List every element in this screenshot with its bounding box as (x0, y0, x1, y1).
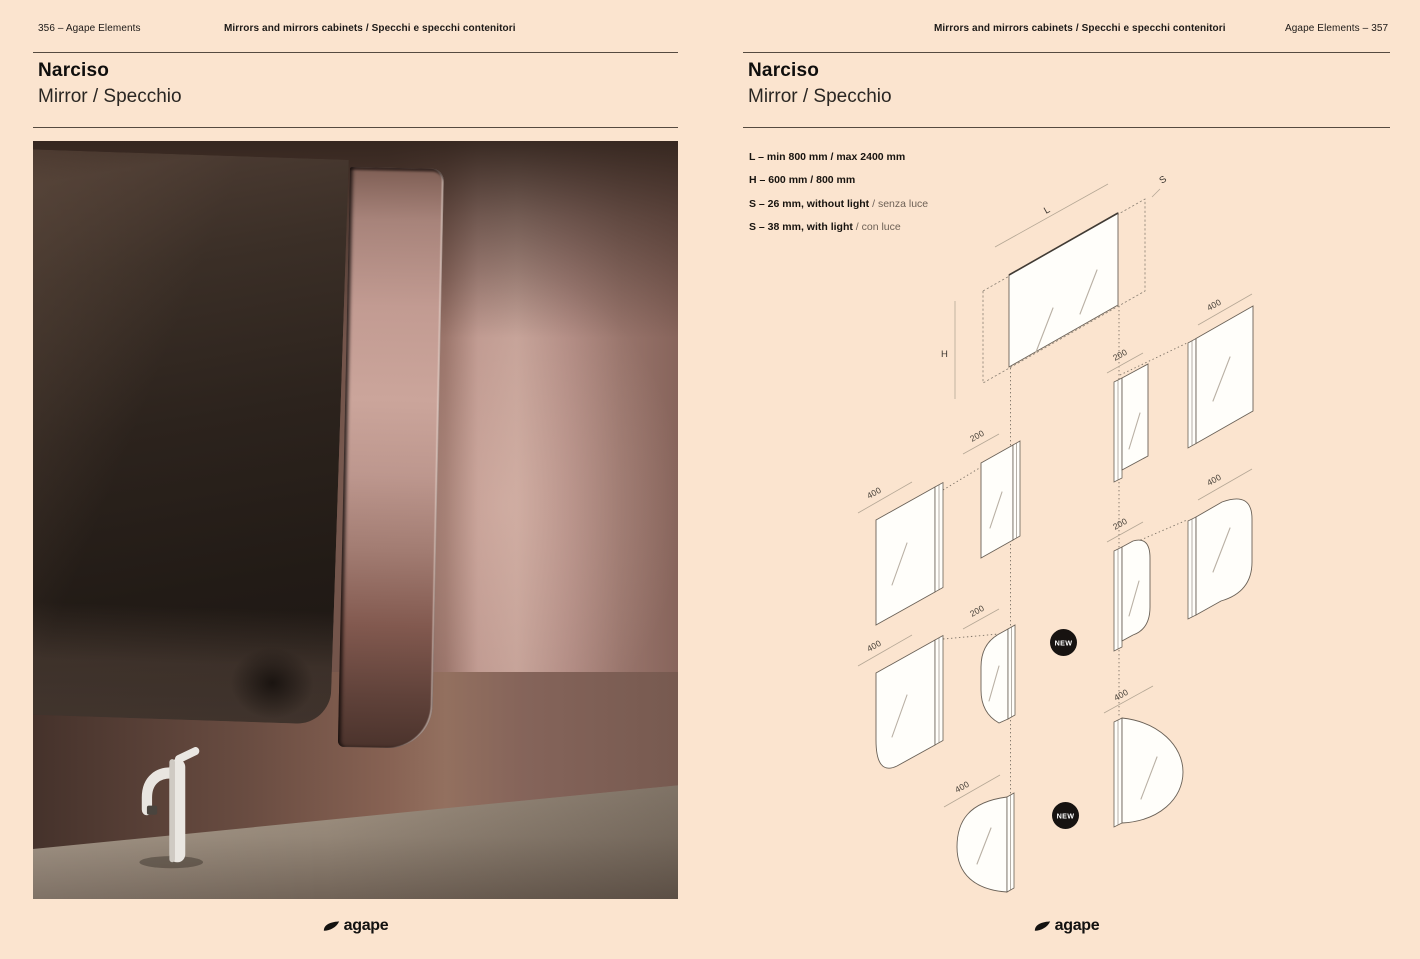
mirror-body (876, 640, 935, 768)
right-product-title: Narciso (748, 60, 819, 82)
dim-label-400: 400 (865, 638, 883, 654)
mirror-body (981, 629, 1008, 723)
agape-logo-text: agape (1055, 917, 1100, 935)
dim-label-400: 400 (1205, 472, 1223, 488)
connector-a2-b2 (943, 634, 999, 639)
dimension-diagram: L H S 400 400 (740, 140, 1420, 930)
left-product-subtitle: Mirror / Specchio (38, 86, 182, 108)
left-footer: agape (33, 917, 678, 935)
right-section-title: Mirrors and mirrors cabinets / Specchi e… (934, 23, 1226, 34)
mirror-body (1196, 306, 1253, 444)
dim-label-200: 200 (968, 428, 986, 444)
mirror-200-pill-right: 200 (1107, 516, 1150, 651)
mirror-400-rect-right: 400 (1188, 294, 1253, 448)
dim-label-S: S (1157, 174, 1169, 187)
right-title-rule (743, 127, 1390, 128)
new-badge: NEW (1052, 802, 1079, 829)
mirror-body (957, 797, 1007, 892)
connector-c1b-c1 (1120, 343, 1187, 375)
product-photo (33, 141, 678, 899)
mirror-body (1122, 364, 1148, 470)
dim-label-L: L (1042, 204, 1052, 216)
mirror-200-rect-right: 200 (1107, 347, 1148, 482)
dim-label-200: 200 (1111, 516, 1129, 532)
mirror-body (981, 445, 1013, 558)
left-page-number: 356 – Agape Elements (38, 23, 141, 34)
mirror-body (1196, 499, 1252, 615)
new-badge-label: NEW (1057, 812, 1075, 821)
dim-label-400: 400 (865, 485, 883, 501)
dim-label-400: 400 (1205, 297, 1223, 313)
left-section-title: Mirrors and mirrors cabinets / Specchi e… (224, 23, 516, 34)
catalog-spread: 356 – Agape Elements Mirrors and mirrors… (0, 0, 1420, 959)
mirror-400-rounded-right: 400 (1188, 469, 1252, 619)
mirror-400-halfround-center: 400 (944, 775, 1014, 892)
left-header-rule (33, 52, 678, 53)
mirror-body (1122, 718, 1183, 823)
dim-line (1104, 686, 1153, 713)
dim-label-200: 200 (968, 603, 986, 619)
main-mirror (1009, 213, 1118, 367)
faucet-body-shade (169, 760, 175, 863)
new-badge: NEW (1050, 629, 1077, 656)
dim-line (1198, 469, 1252, 500)
photo-faucet (117, 747, 211, 868)
photo-mirror-face (33, 149, 349, 724)
right-product-subtitle: Mirror / Specchio (748, 86, 892, 108)
right-header-rule (743, 52, 1390, 53)
mirror-400-rect-left: 400 (858, 482, 943, 625)
agape-leaf-icon (1034, 920, 1051, 933)
photo-mirror-edge (338, 167, 444, 749)
left-product-title: Narciso (38, 60, 109, 82)
technical-drawing: L H S 400 400 (740, 140, 1420, 930)
agape-leaf-icon (323, 920, 340, 933)
right-footer: agape (743, 917, 1390, 935)
agape-logo-text: agape (344, 917, 389, 935)
dim-label-H: H (941, 349, 948, 360)
mirror-200-rect-center: 200 (963, 428, 1020, 558)
mirror-400-halfround-right: 400 (1104, 686, 1183, 827)
new-badge-label: NEW (1055, 639, 1073, 648)
faucet-lever (179, 751, 196, 759)
dim-label-200: 200 (1111, 347, 1129, 363)
dim-tick-S (1152, 189, 1160, 197)
mirror-400-rounded-left: 400 (858, 635, 943, 768)
main-mirror-group: L H S (941, 174, 1169, 399)
left-title-rule (33, 127, 678, 128)
mirror-body (876, 487, 935, 625)
mirror-200-pill-center: 200 (963, 603, 1015, 723)
right-page-number: Agape Elements – 357 (1285, 23, 1388, 34)
faucet-aerator (147, 806, 157, 815)
dim-label-400: 400 (953, 779, 971, 795)
